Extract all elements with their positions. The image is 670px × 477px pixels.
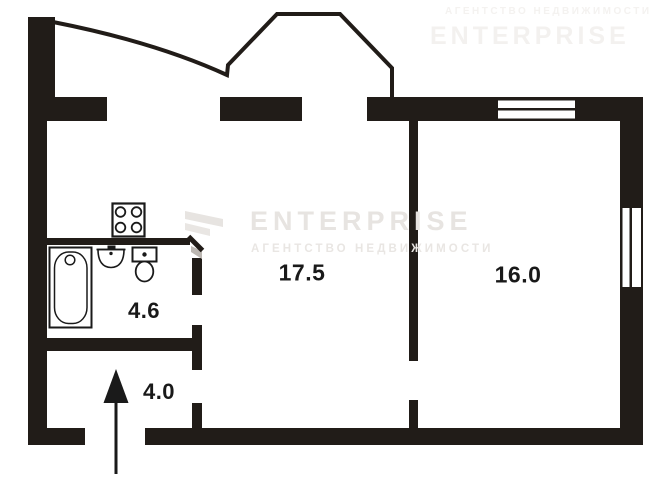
wall-bath-right-lower bbox=[192, 403, 202, 428]
wall-bath-right-upper bbox=[192, 258, 202, 295]
wall-bottom-left bbox=[28, 428, 85, 445]
wall-top-middle-stub bbox=[220, 97, 302, 121]
stove-icon bbox=[113, 204, 145, 237]
wall-bathroom-hall bbox=[47, 338, 195, 351]
wall-bottom-right bbox=[145, 428, 643, 445]
entrance-arrow-icon bbox=[104, 369, 129, 474]
wall-left bbox=[28, 97, 47, 445]
balcony-outline bbox=[53, 14, 392, 99]
wall-room-divider-lower bbox=[409, 400, 418, 428]
floor-plan: АГЕНТСТВО НЕДВИЖИМОСТИ ENTERPRISE ENTERP… bbox=[0, 0, 670, 477]
interior-walls bbox=[47, 121, 418, 428]
top-wall-window bbox=[498, 101, 575, 119]
right-wall-window bbox=[623, 208, 642, 287]
room-area-label: 16.0 bbox=[495, 262, 542, 289]
floor-plan-drawing bbox=[0, 0, 670, 477]
wall-bath-right-middle bbox=[192, 325, 202, 370]
bathtub-icon bbox=[50, 248, 92, 328]
room-area-label: 4.0 bbox=[143, 379, 175, 405]
room-area-label: 4.6 bbox=[128, 298, 160, 324]
toilet-icon bbox=[133, 248, 157, 282]
door-swing-icon bbox=[189, 237, 203, 260]
room-area-label: 17.5 bbox=[279, 260, 326, 287]
wall-bathroom-top bbox=[47, 238, 190, 245]
wall-room-divider-upper bbox=[409, 121, 418, 361]
sink-icon bbox=[97, 246, 126, 268]
